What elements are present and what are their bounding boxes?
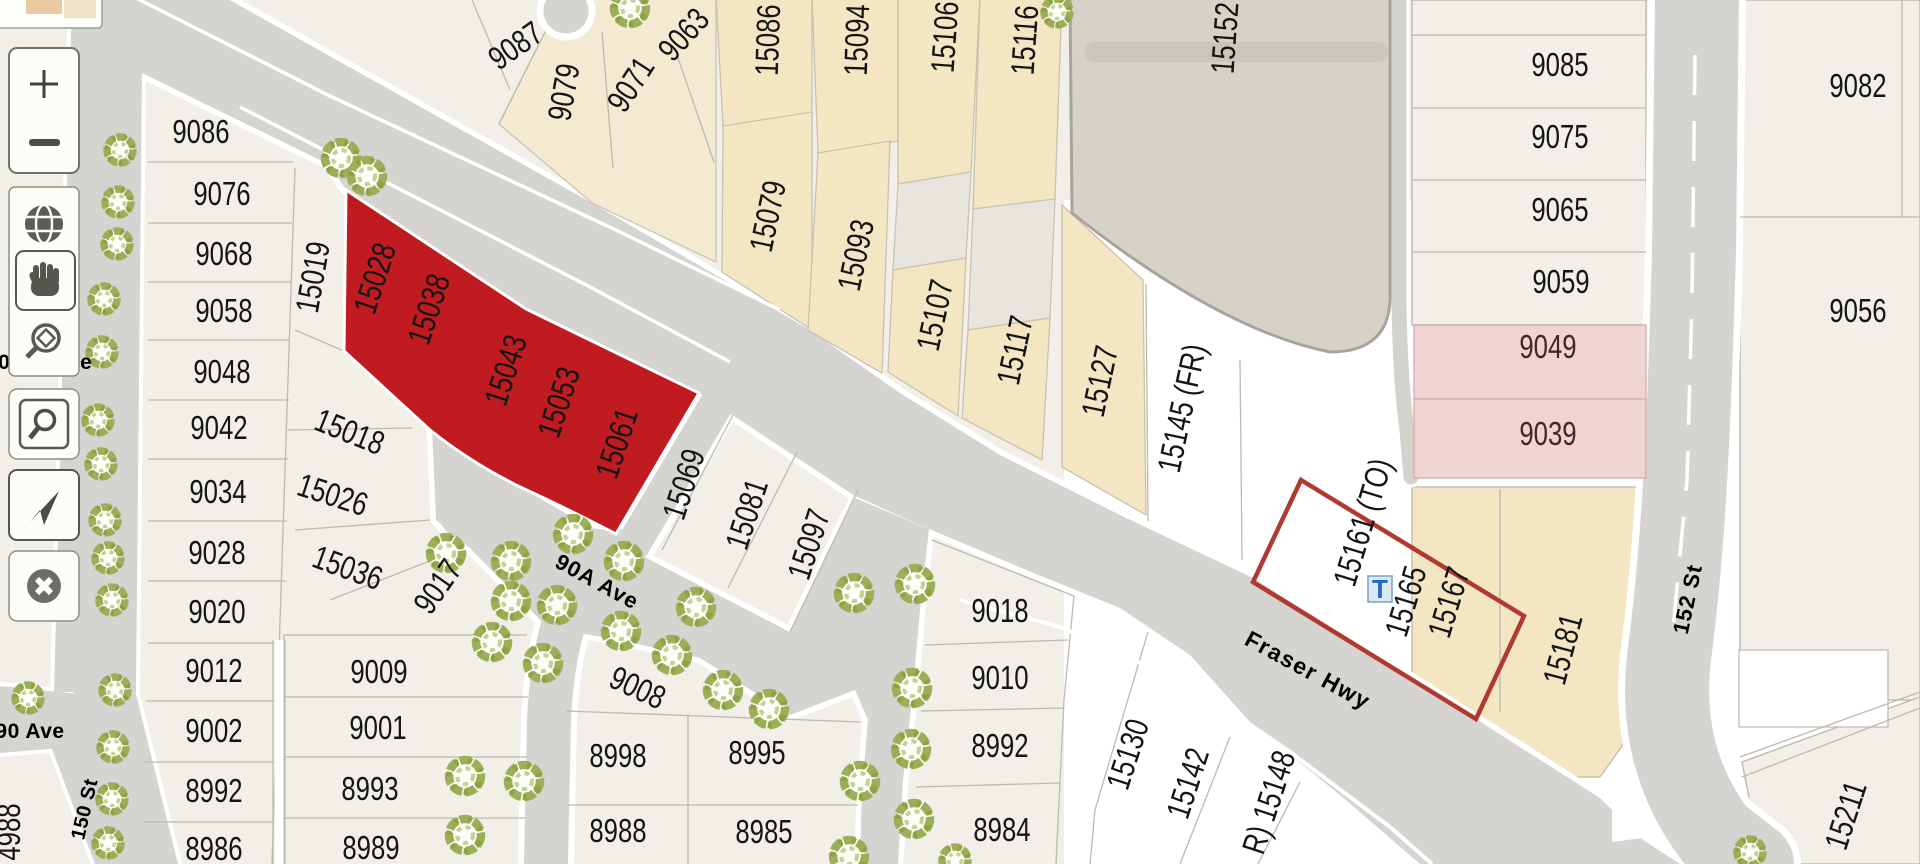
svg-text:8993: 8993 bbox=[341, 771, 398, 808]
svg-text:9059: 9059 bbox=[1532, 264, 1589, 301]
svg-text:9065: 9065 bbox=[1531, 192, 1588, 229]
svg-text:e: e bbox=[80, 351, 92, 374]
svg-text:9009: 9009 bbox=[350, 654, 407, 691]
svg-text:8984: 8984 bbox=[973, 812, 1030, 849]
svg-text:9056: 9056 bbox=[1829, 293, 1886, 330]
svg-text:15086: 15086 bbox=[749, 4, 788, 77]
svg-text:9042: 9042 bbox=[190, 410, 247, 447]
svg-text:9082: 9082 bbox=[1829, 68, 1886, 105]
svg-text:9012: 9012 bbox=[185, 653, 242, 690]
svg-text:8986: 8986 bbox=[185, 831, 242, 864]
svg-text:15116: 15116 bbox=[1005, 4, 1047, 76]
svg-text:9028: 9028 bbox=[188, 535, 245, 572]
svg-text:8992: 8992 bbox=[971, 728, 1028, 765]
svg-text:15106: 15106 bbox=[925, 0, 967, 74]
svg-text:9001: 9001 bbox=[349, 710, 406, 747]
svg-text:90 Ave: 90 Ave bbox=[0, 720, 65, 743]
svg-text:8992: 8992 bbox=[185, 773, 242, 810]
svg-text:8988: 8988 bbox=[589, 813, 646, 850]
svg-text:9039: 9039 bbox=[1519, 416, 1576, 453]
svg-text:9034: 9034 bbox=[189, 474, 246, 511]
svg-text:9085: 9085 bbox=[1531, 47, 1588, 84]
svg-text:8995: 8995 bbox=[728, 735, 785, 772]
svg-text:4988: 4988 bbox=[0, 803, 28, 860]
svg-text:8998: 8998 bbox=[589, 738, 646, 775]
svg-text:9018: 9018 bbox=[971, 593, 1028, 630]
svg-text:9068: 9068 bbox=[195, 236, 252, 273]
svg-text:9058: 9058 bbox=[195, 293, 252, 330]
svg-text:8985: 8985 bbox=[735, 814, 792, 851]
svg-text:T: T bbox=[1372, 574, 1388, 604]
svg-text:15152: 15152 bbox=[1205, 1, 1247, 75]
svg-text:9020: 9020 bbox=[188, 594, 245, 631]
svg-text:15094: 15094 bbox=[838, 4, 877, 77]
svg-text:9002: 9002 bbox=[185, 713, 242, 750]
svg-text:9010: 9010 bbox=[971, 660, 1028, 697]
svg-text:8989: 8989 bbox=[342, 830, 399, 864]
svg-text:9076: 9076 bbox=[193, 176, 250, 213]
svg-text:9075: 9075 bbox=[1531, 119, 1588, 156]
svg-text:9086: 9086 bbox=[172, 114, 229, 151]
svg-text:9048: 9048 bbox=[193, 354, 250, 391]
svg-text:9049: 9049 bbox=[1519, 329, 1576, 366]
